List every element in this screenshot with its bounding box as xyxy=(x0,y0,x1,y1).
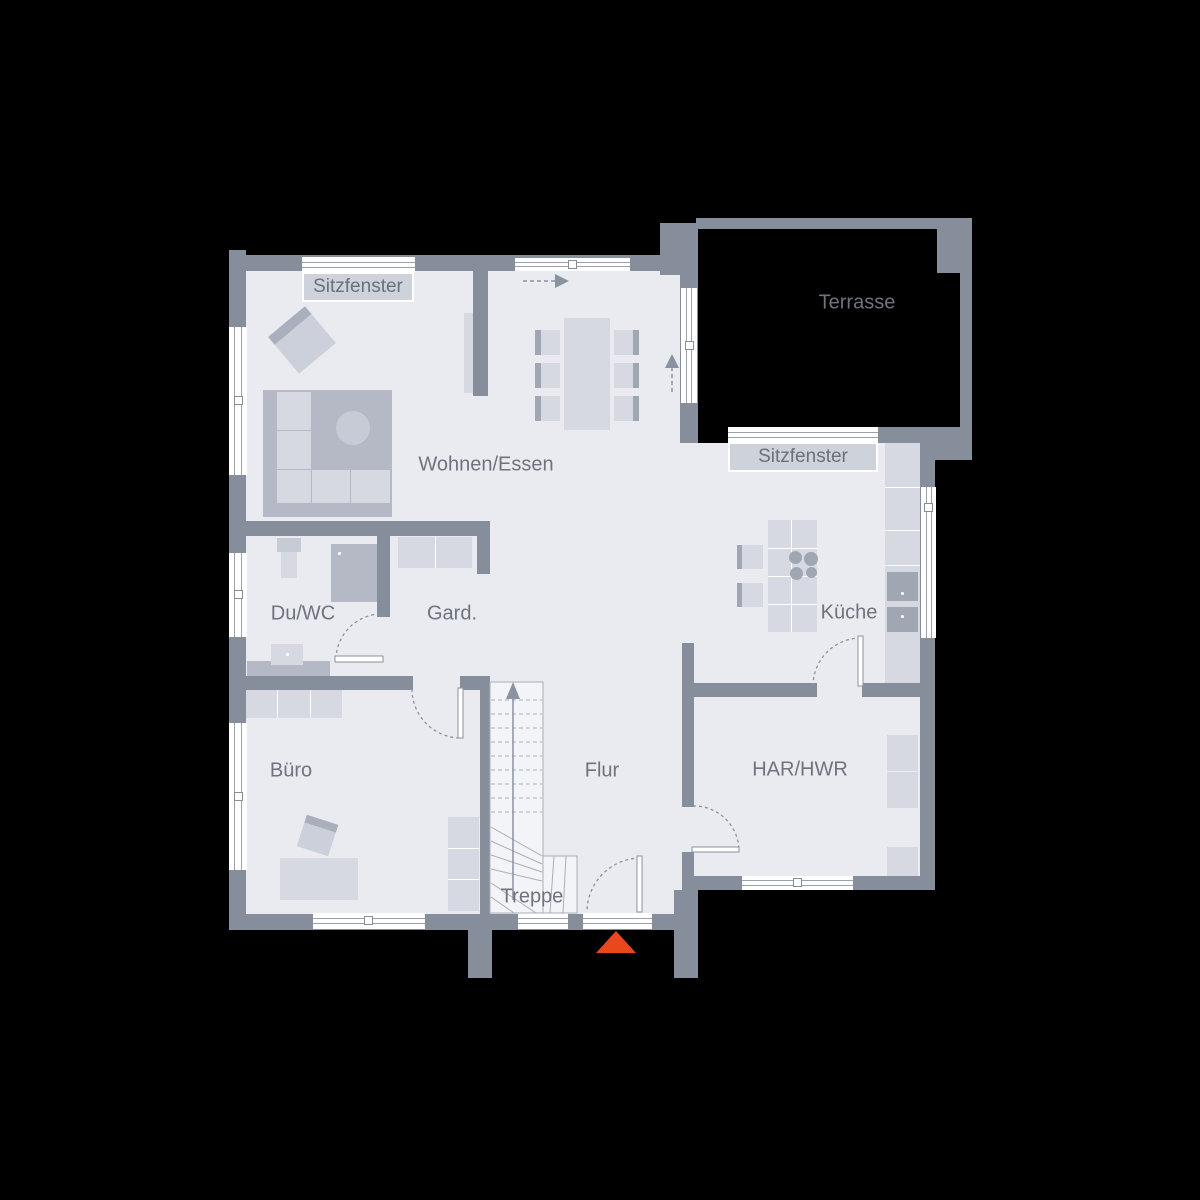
slide-arrow-right-icon xyxy=(523,274,569,288)
room-label-wohnen-essen: Wohnen/Essen xyxy=(418,454,553,477)
sitzfenster-label-text: Sitzfenster xyxy=(758,446,848,468)
door-leaf-office xyxy=(458,688,463,738)
room-label-terrasse: Terrasse xyxy=(819,292,896,315)
door-arc-har xyxy=(693,806,739,851)
door-leaf-kitchen xyxy=(858,636,863,686)
door-leaf-duwc xyxy=(335,656,383,662)
sitzfenster-label-text: Sitzfenster xyxy=(313,276,403,298)
door-arc-duwc xyxy=(336,614,380,659)
plan-annotations xyxy=(0,0,1200,1200)
door-arc-entrance xyxy=(587,858,640,911)
slide-arrow-up-icon xyxy=(665,354,679,392)
door-arc-office xyxy=(412,689,461,738)
room-label-duwc: Du/WC xyxy=(271,603,335,626)
sitzfenster-label-kitchen: Sitzfenster xyxy=(728,442,878,472)
door-arc-kitchen xyxy=(813,638,861,686)
entrance-marker-icon xyxy=(596,931,636,953)
room-label-har-hwr: HAR/HWR xyxy=(752,759,848,782)
sitzfenster-label-top: Sitzfenster xyxy=(302,272,414,302)
room-label-treppe: Treppe xyxy=(501,886,564,909)
floorplan-canvas: Sitzfenster Sitzfenster Terrasse Wohnen/… xyxy=(0,0,1200,1200)
room-label-flur: Flur xyxy=(585,760,619,783)
staircase xyxy=(490,682,577,913)
room-label-buero: Büro xyxy=(270,760,312,783)
door-leaf-entrance xyxy=(637,856,642,912)
room-label-kueche: Küche xyxy=(821,602,878,625)
door-leaf-har xyxy=(692,847,739,852)
room-label-gard: Gard. xyxy=(427,603,477,626)
